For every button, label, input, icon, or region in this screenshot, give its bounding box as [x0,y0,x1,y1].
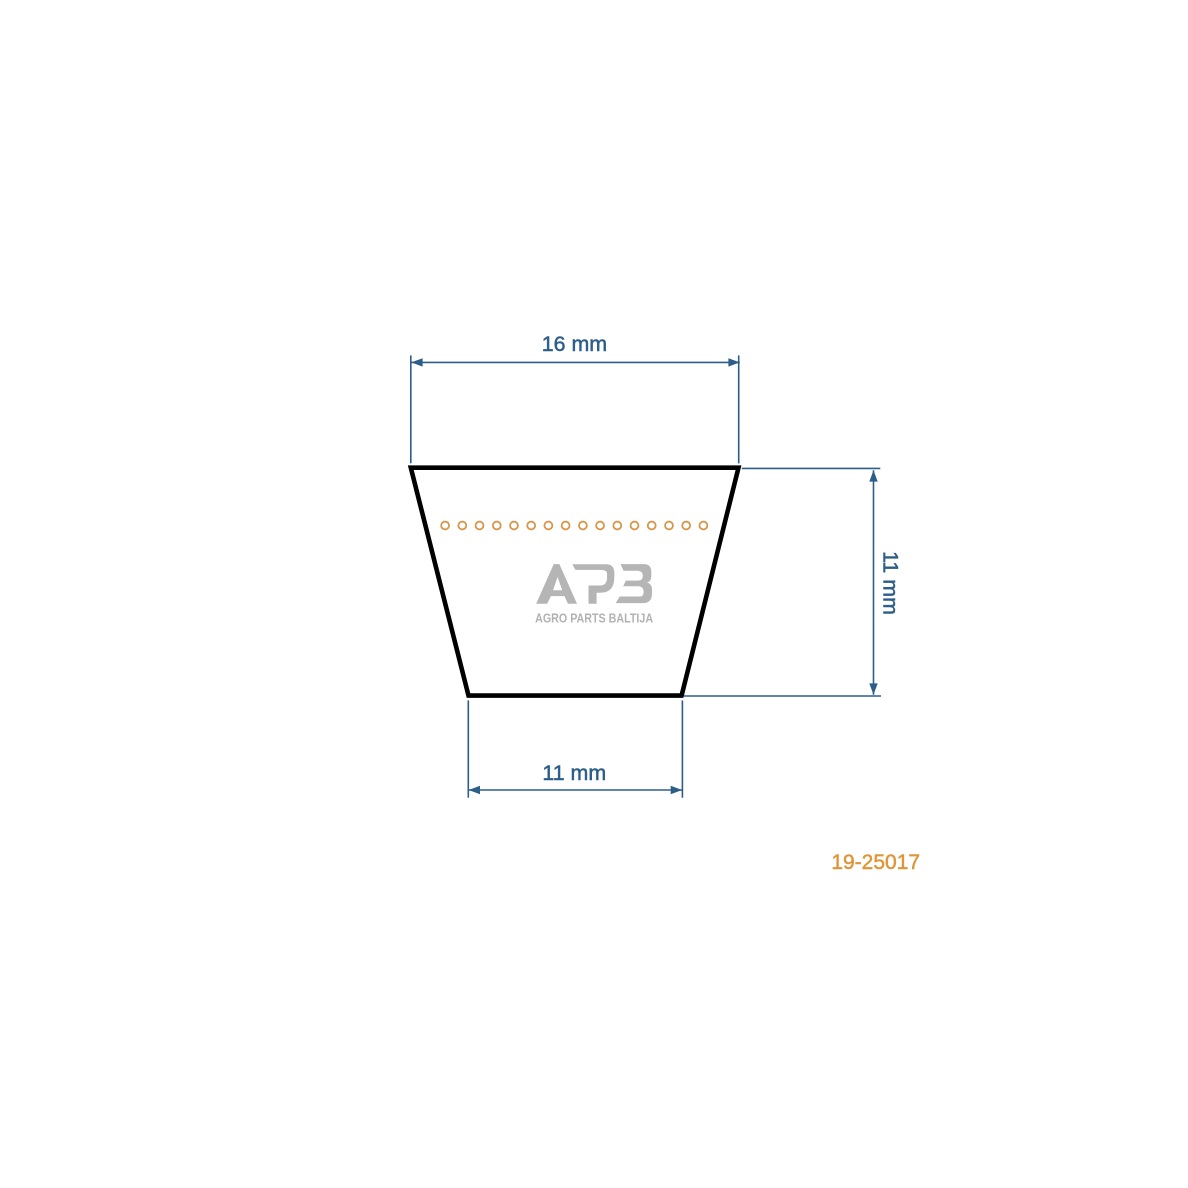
svg-text:19-25017: 19-25017 [831,851,920,874]
svg-text:16 mm: 16 mm [542,332,607,356]
svg-text:11 mm: 11 mm [542,761,606,785]
svg-text:AGRO PARTS BALTIJA: AGRO PARTS BALTIJA [535,610,653,625]
svg-text:11 mm: 11 mm [879,551,903,615]
